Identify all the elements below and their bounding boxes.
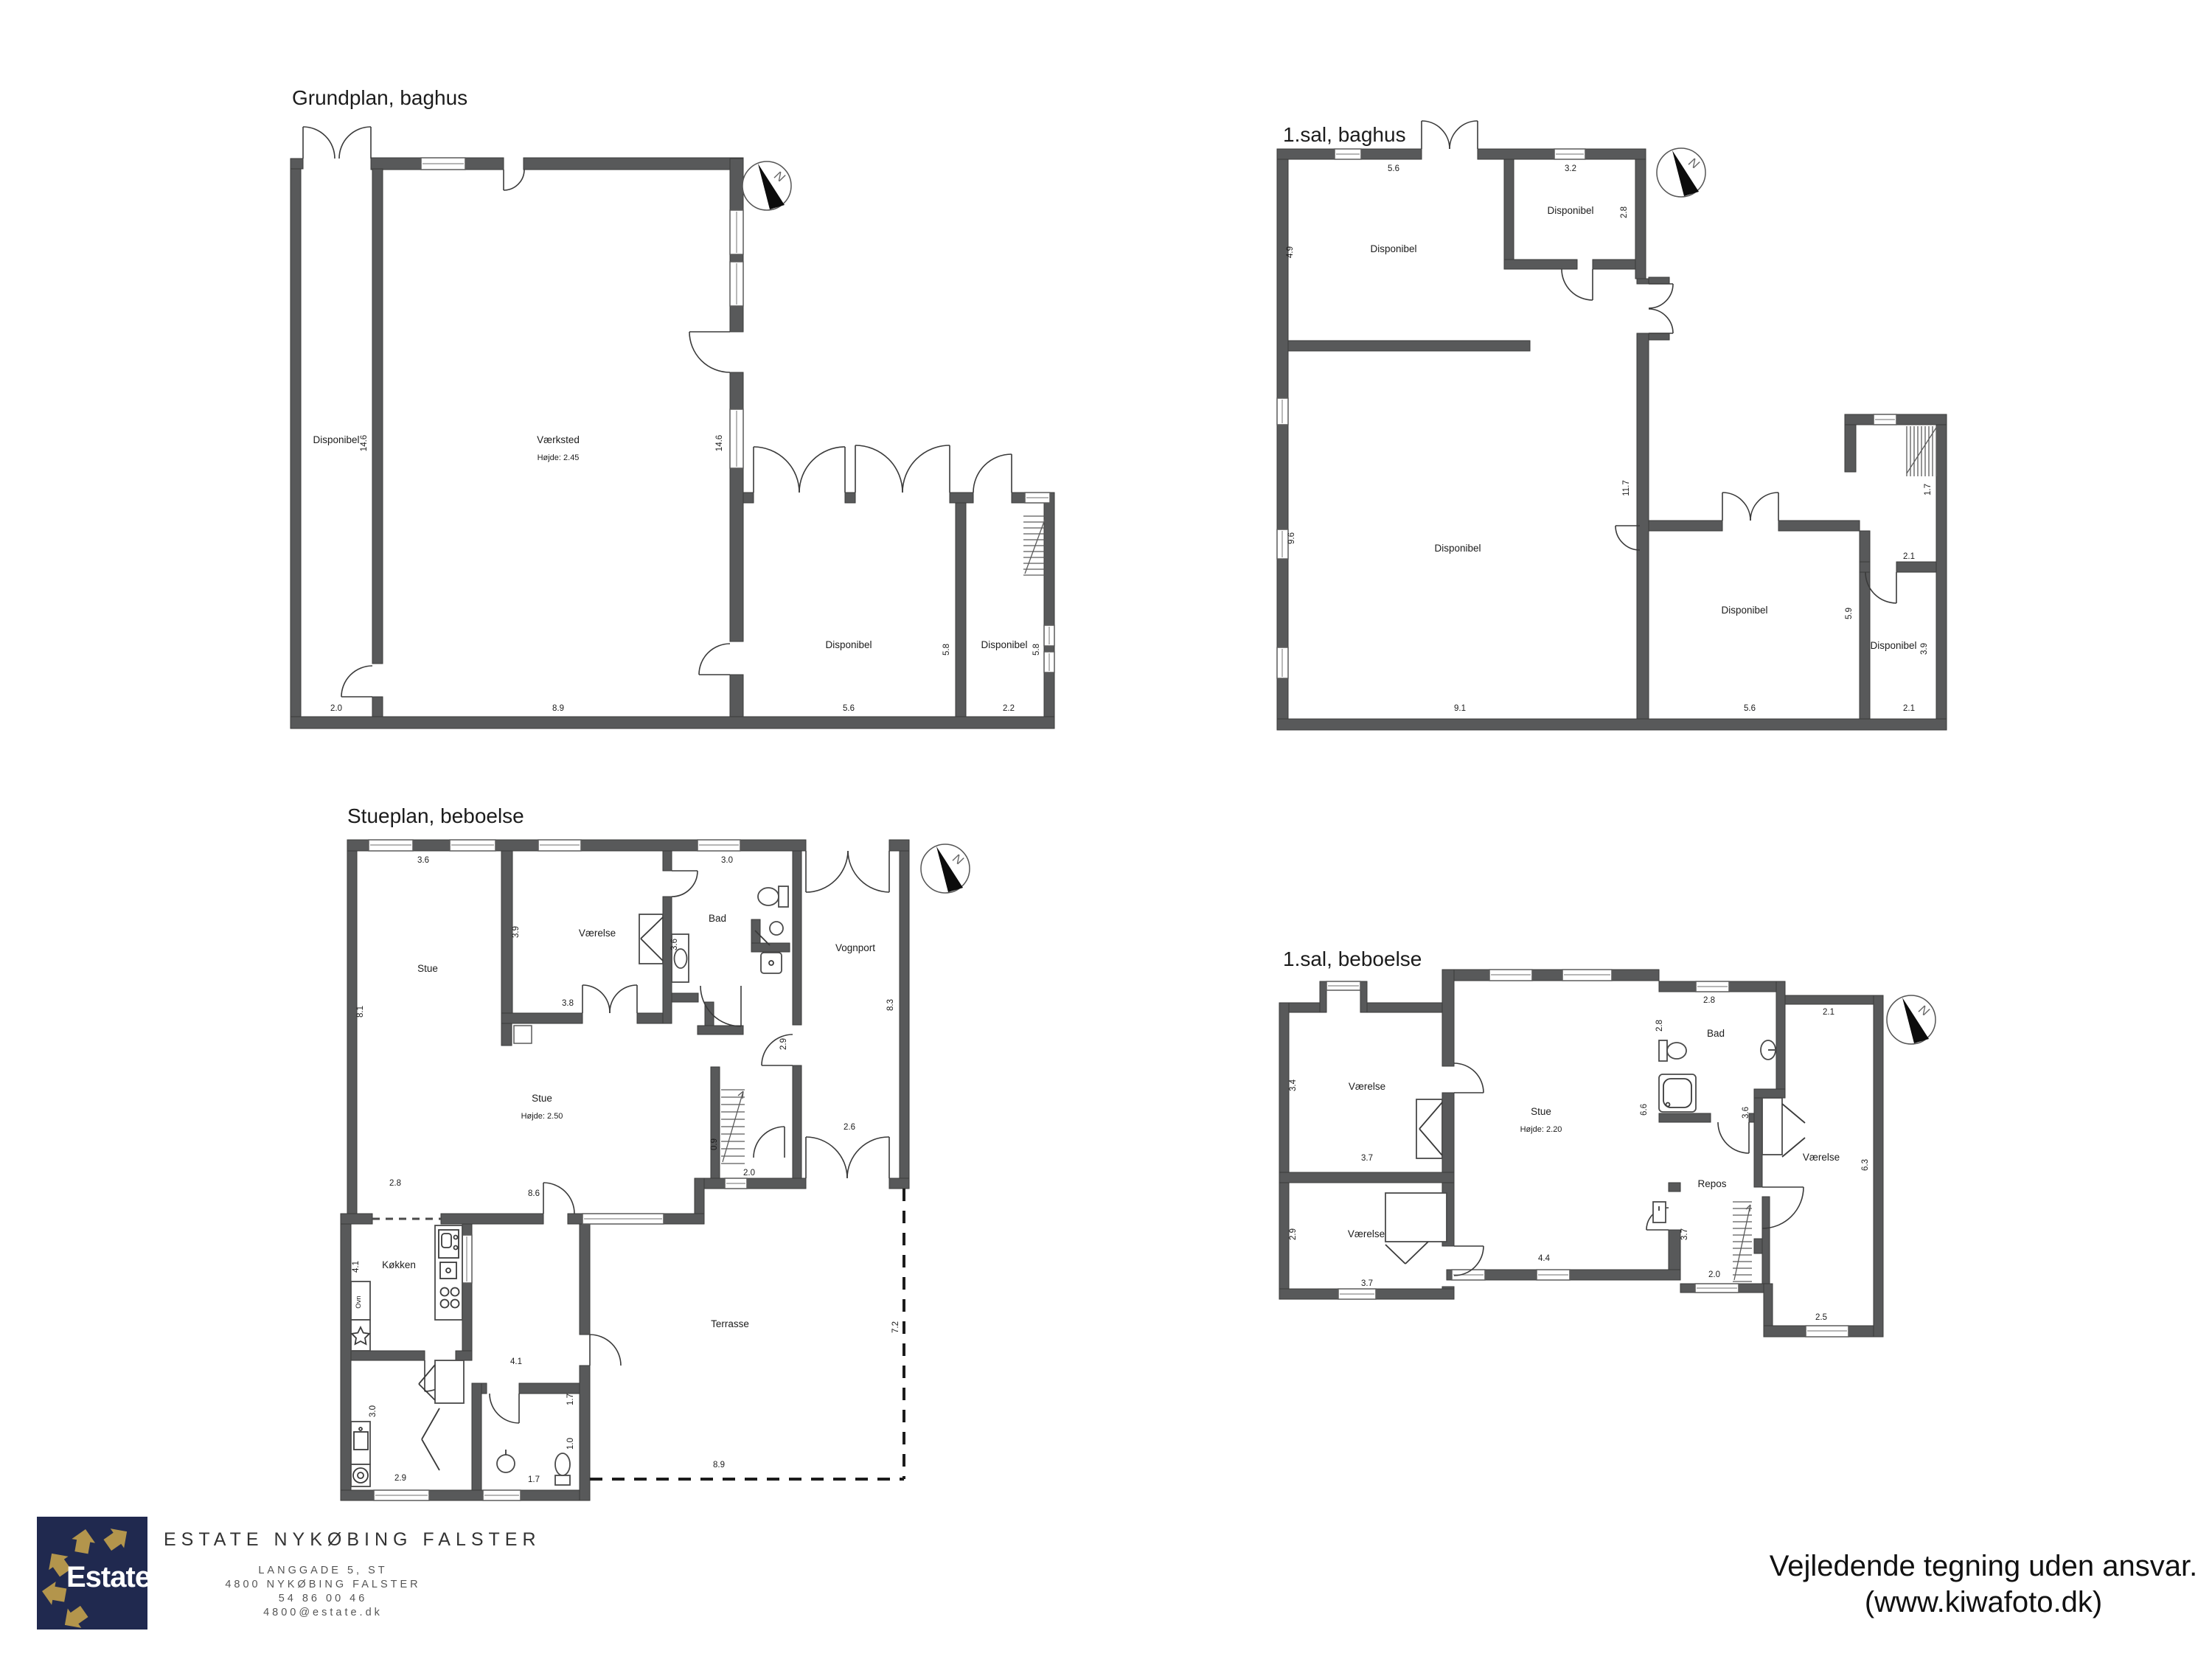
closet-icon	[1416, 1099, 1442, 1158]
dim-label: 5.9	[1845, 608, 1854, 619]
toilet-icon	[1659, 1040, 1686, 1061]
doors	[303, 127, 1012, 697]
walls	[1277, 149, 1947, 730]
dim-label: 2.1	[1823, 1008, 1834, 1017]
dim-label: 3.7	[1361, 1279, 1373, 1288]
dim-label: 14.6	[715, 435, 724, 451]
shower-icon	[1659, 1074, 1696, 1112]
dim-label: 0.9	[710, 1138, 719, 1150]
dim-label: 4.4	[1538, 1254, 1551, 1263]
dim-label: 3.7	[1361, 1154, 1373, 1163]
dim-label: 14.6	[360, 435, 369, 451]
room-height-label: Højde: 2.45	[538, 453, 580, 462]
windows	[369, 840, 747, 1500]
dim-label: 2.9	[779, 1038, 788, 1050]
plan-grundplan-baghus: Grundplan, baghus Disponibel 14.6 Værkst…	[291, 86, 1054, 728]
dim-label: 2.0	[743, 1169, 755, 1178]
agency-phone: 54 86 00 46	[164, 1592, 482, 1606]
oven-label: Ovn	[355, 1295, 363, 1308]
room-label: Værelse	[579, 928, 616, 939]
stairs-icon	[1907, 426, 1936, 476]
room-label: Repos	[1697, 1178, 1726, 1189]
registered-mark: ®	[150, 1568, 157, 1579]
dim-label: 3.8	[562, 999, 574, 1008]
dim-label: 4.1	[352, 1261, 361, 1273]
estate-logo-wordmark: Estate®	[66, 1561, 157, 1594]
room-label: Stue	[532, 1093, 552, 1104]
disclaimer-line2: (www.kiwafoto.dk)	[1755, 1585, 2212, 1621]
dim-label: 2.2	[1003, 704, 1015, 713]
dishwasher-star-icon	[351, 1320, 370, 1351]
room-label: Disponibel	[1434, 543, 1481, 554]
bath-toilet-icon	[555, 1453, 570, 1485]
disclaimer-line1: Vejledende tegning uden ansvar.	[1755, 1548, 2212, 1585]
dim-label: 8.1	[356, 1006, 365, 1018]
stairs-icon	[1733, 1202, 1752, 1281]
dim-label: 2.5	[1815, 1313, 1827, 1322]
dim-label: 9.1	[1454, 704, 1466, 713]
dim-label: 1.7	[566, 1394, 575, 1405]
dim-label: 2.8	[1620, 206, 1629, 218]
walls	[341, 840, 909, 1500]
agency-address-line1: LANGGADE 5, ST	[164, 1564, 482, 1578]
dim-label: 8.6	[528, 1189, 540, 1198]
room-label: Disponibel	[313, 434, 359, 445]
dim-label: 3.9	[1920, 643, 1929, 655]
laundry-sink-icon	[351, 1422, 370, 1464]
sink-icon	[1761, 1040, 1775, 1060]
room-label: Værelse	[1803, 1152, 1840, 1163]
room-label: Terrasse	[711, 1318, 749, 1329]
dim-label: 3.7	[1680, 1228, 1689, 1240]
windows	[1277, 149, 1896, 678]
plan-title: Stueplan, beboelse	[347, 804, 524, 827]
wall-notch	[514, 1026, 532, 1043]
dim-label: 8.9	[713, 1461, 725, 1470]
room-label: Disponibel	[1721, 605, 1767, 616]
dim-label: 3.6	[1742, 1107, 1750, 1119]
room-label: Køkken	[382, 1259, 416, 1270]
kitchen-counter	[435, 1225, 462, 1320]
dim-label: 5.8	[942, 644, 951, 655]
room-label: Disponibel	[981, 639, 1027, 650]
oven-icon: Ovn	[351, 1281, 370, 1320]
walls	[291, 158, 1054, 728]
dim-label: 2.8	[1703, 996, 1715, 1005]
doors	[372, 851, 889, 1423]
room-label: Bad	[1707, 1028, 1725, 1039]
dim-label: 3.6	[670, 939, 679, 950]
wardrobe-icon	[419, 1360, 464, 1470]
room-label: Værksted	[537, 434, 580, 445]
dim-label: 7.2	[891, 1321, 900, 1333]
closet-icon	[639, 914, 663, 964]
dim-label: 6.3	[1861, 1159, 1870, 1171]
room-label: Disponibel	[1370, 243, 1416, 254]
dim-label: 8.3	[886, 999, 895, 1011]
room-label: Værelse	[1348, 1228, 1385, 1239]
dim-label: 3.0	[369, 1405, 378, 1417]
room-label: Værelse	[1349, 1081, 1385, 1092]
plan-title: 1.sal, baghus	[1283, 123, 1406, 146]
doors	[1454, 1063, 1804, 1276]
terrace-boundary	[590, 1189, 904, 1479]
dim-label: 1.7	[528, 1475, 540, 1484]
room-height-label: Højde: 2.20	[1520, 1125, 1562, 1134]
dim-label: 2.8	[1655, 1020, 1664, 1032]
agency-address-line2: 4800 NYKØBING FALSTER	[164, 1578, 482, 1592]
dim-label: 2.6	[844, 1123, 855, 1132]
room-label: Bad	[709, 913, 726, 924]
dim-label: 6.6	[1640, 1104, 1649, 1116]
dim-label: 3.0	[721, 856, 733, 865]
dim-label: 3.2	[1565, 164, 1576, 173]
disclaimer: Vejledende tegning uden ansvar. (www.kiw…	[1755, 1548, 2212, 1621]
dim-label: 4.9	[1286, 246, 1295, 258]
plan-title: Grundplan, baghus	[292, 86, 467, 109]
room-label: Stue	[1531, 1106, 1551, 1117]
dim-label: 3.9	[512, 926, 521, 938]
floorplan-sheet: N	[0, 0, 2212, 1659]
room-label: Vognport	[835, 942, 875, 953]
room-label: Disponibel	[825, 639, 872, 650]
dim-label: 9.6	[1287, 532, 1296, 544]
room-height-label: Højde: 2.50	[521, 1112, 563, 1121]
plan-1sal-baghus: 1.sal, baghus 5.6 3.2 Disponibel 2.8 Dis…	[1277, 121, 1947, 730]
dim-label: 5.6	[843, 704, 855, 713]
dim-label: 2.0	[1708, 1270, 1720, 1279]
agency-email: 4800@estate.dk	[164, 1606, 482, 1620]
room-label: Stue	[417, 963, 438, 974]
dim-label: 5.6	[1388, 164, 1399, 173]
dim-label: 2.8	[389, 1179, 401, 1188]
dim-label: 2.1	[1903, 552, 1915, 561]
agency-name: ESTATE NYKØBING FALSTER	[164, 1529, 482, 1551]
dim-label: 2.9	[394, 1474, 406, 1483]
room-label: Disponibel	[1870, 640, 1916, 651]
plan-stueplan-beboelse: Ovn Stueplan, be	[341, 804, 970, 1500]
dim-label: 1.0	[566, 1438, 575, 1450]
washing-machine-icon	[351, 1464, 370, 1486]
dim-label: 8.9	[552, 704, 564, 713]
dim-label: 2.9	[1289, 1228, 1298, 1240]
plan-1sal-beboelse: 1.sal, beboelse 3.4 Værelse 3.7 2.9 Være…	[1279, 947, 1935, 1337]
plan-title: 1.sal, beboelse	[1283, 947, 1422, 970]
stairs-icon	[1023, 516, 1047, 575]
dim-label: 11.7	[1622, 480, 1631, 496]
dim-label: 2.1	[1903, 704, 1915, 713]
dim-label: 5.6	[1744, 704, 1756, 713]
dim-label: 2.0	[330, 704, 342, 713]
toilet-icon	[758, 886, 788, 907]
closet-icon	[1762, 1098, 1805, 1157]
dim-label: 1.7	[1924, 484, 1933, 495]
dim-label: 3.6	[417, 856, 429, 865]
stairs-icon	[721, 1090, 745, 1164]
dim-label: 4.1	[510, 1357, 522, 1366]
closet-icon	[1385, 1193, 1447, 1264]
agency-block: ESTATE NYKØBING FALSTER LANGGADE 5, ST 4…	[164, 1529, 482, 1620]
estate-logo: Estate®	[37, 1517, 147, 1630]
dim-label: 3.4	[1289, 1079, 1298, 1091]
bath-sink-icon	[497, 1450, 515, 1472]
hall-sink-icon	[1653, 1202, 1666, 1222]
room-label: Disponibel	[1547, 205, 1593, 216]
dim-label: 5.8	[1032, 644, 1041, 655]
